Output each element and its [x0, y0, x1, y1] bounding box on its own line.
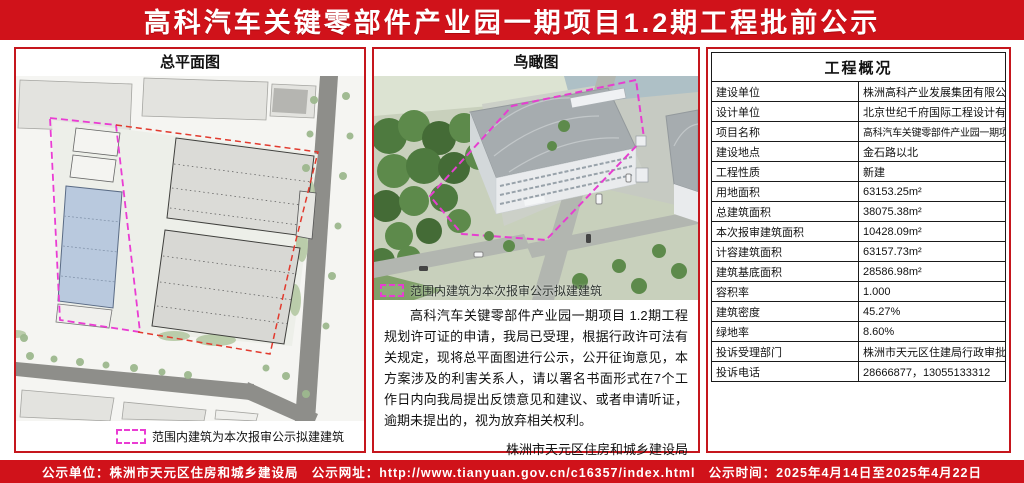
- footer-time-value: 2025年4月14日至2025年4月22日: [776, 466, 982, 480]
- magenta-dashed-box-icon: [380, 284, 404, 297]
- site-plan-legend: 范围内建筑为本次报审公示拟建建筑: [16, 428, 364, 445]
- row-label: 建筑基底面积: [712, 262, 859, 282]
- magenta-dashed-box-icon: [116, 429, 146, 444]
- footer-unit: 公示单位：株洲市天元区住房和城乡建设局: [42, 462, 299, 481]
- row-value: 45.27%: [859, 302, 1006, 322]
- aerial-title: 鸟瞰图: [374, 49, 698, 76]
- row-value: 38075.38m²: [859, 202, 1006, 222]
- site-plan-svg: [16, 76, 364, 421]
- issuer-signature: 株洲市天元区住房和城乡建设局: [374, 439, 698, 458]
- row-label: 本次报审建筑面积: [712, 222, 859, 242]
- header-banner: 高科汽车关键零部件产业园一期项目1.2期工程批前公示: [0, 0, 1024, 40]
- row-value: 株洲市天元区住建局行政审批股: [859, 342, 1006, 362]
- table-row: 容积率1.000: [712, 282, 1006, 302]
- site-plan-drawing: [16, 76, 364, 421]
- table-row: 计容建筑面积63157.73m²: [712, 242, 1006, 262]
- table-row: 建设单位株洲高科产业发展集团有限公司: [712, 82, 1006, 102]
- table-row: 投诉电话28666877，13055133312: [712, 362, 1006, 382]
- table-row: 本次报审建筑面积10428.09m²: [712, 222, 1006, 242]
- main-title: 高科汽车关键零部件产业园一期项目1.2期工程批前公示: [144, 1, 881, 40]
- site-plan-title: 总平面图: [16, 49, 364, 76]
- row-label: 计容建筑面积: [712, 242, 859, 262]
- row-label: 总建筑面积: [712, 202, 859, 222]
- overview-table: 工程概况 建设单位株洲高科产业发展集团有限公司 设计单位北京世纪千府国际工程设计…: [711, 52, 1006, 382]
- aerial-view-svg: [374, 76, 698, 300]
- row-label: 用地面积: [712, 182, 859, 202]
- table-row: 工程性质新建: [712, 162, 1006, 182]
- table-title: 工程概况: [712, 53, 1006, 82]
- row-value: 高科汽车关键零部件产业园一期项目1.2期工程: [859, 122, 1006, 142]
- footer-url-value: http://www.tianyuan.gov.cn/c16357/index.…: [379, 466, 695, 480]
- row-label: 建设地点: [712, 142, 859, 162]
- footer-banner: 公示单位：株洲市天元区住房和城乡建设局 公示网址：http://www.tian…: [0, 460, 1024, 483]
- table-row: 投诉受理部门株洲市天元区住建局行政审批股: [712, 342, 1006, 362]
- row-value: 28666877，13055133312: [859, 362, 1006, 382]
- row-value: 金石路以北: [859, 142, 1006, 162]
- footer-unit-label: 公示单位：: [42, 466, 110, 480]
- overview-panel: 工程概况 建设单位株洲高科产业发展集团有限公司 设计单位北京世纪千府国际工程设计…: [706, 47, 1011, 453]
- row-value: 10428.09m²: [859, 222, 1006, 242]
- footer-unit-value: 株洲市天元区住房和城乡建设局: [110, 466, 299, 480]
- aerial-legend-text: 范围内建筑为本次报审公示拟建建筑: [410, 282, 602, 299]
- aerial-legend: 范围内建筑为本次报审公示拟建建筑: [380, 282, 602, 299]
- row-value: 1.000: [859, 282, 1006, 302]
- table-row: 建筑基底面积28586.98m²: [712, 262, 1006, 282]
- row-label: 投诉受理部门: [712, 342, 859, 362]
- aerial-panel: 鸟瞰图: [372, 47, 700, 453]
- table-row: 用地面积63153.25m²: [712, 182, 1006, 202]
- row-label: 设计单位: [712, 102, 859, 122]
- row-value: 63153.25m²: [859, 182, 1006, 202]
- table-row: 总建筑面积38075.38m²: [712, 202, 1006, 222]
- row-value: 新建: [859, 162, 1006, 182]
- footer-url-label: 公示网址：: [312, 466, 380, 480]
- public-notice-poster: 高科汽车关键零部件产业园一期项目1.2期工程批前公示 总平面图: [0, 0, 1024, 483]
- notice-paragraph: 高科汽车关键零部件产业园一期项目 1.2期工程规划许可证的申请，我局已受理，根据…: [374, 300, 698, 431]
- footer-time-label: 公示时间：: [709, 466, 777, 480]
- row-label: 工程性质: [712, 162, 859, 182]
- row-label: 绿地率: [712, 322, 859, 342]
- site-plan-panel: 总平面图: [14, 47, 366, 453]
- table-row: 建设地点金石路以北: [712, 142, 1006, 162]
- aerial-view-rendering: 范围内建筑为本次报审公示拟建建筑: [374, 76, 698, 300]
- row-value: 63157.73m²: [859, 242, 1006, 262]
- row-label: 建设单位: [712, 82, 859, 102]
- row-label: 容积率: [712, 282, 859, 302]
- row-label: 投诉电话: [712, 362, 859, 382]
- row-value: 28586.98m²: [859, 262, 1006, 282]
- table-row: 绿地率8.60%: [712, 322, 1006, 342]
- table-row: 建筑密度45.27%: [712, 302, 1006, 322]
- table-row: 项目名称高科汽车关键零部件产业园一期项目1.2期工程: [712, 122, 1006, 142]
- row-value: 8.60%: [859, 322, 1006, 342]
- row-value: 株洲高科产业发展集团有限公司: [859, 82, 1006, 102]
- row-label: 建筑密度: [712, 302, 859, 322]
- site-plan-legend-text: 范围内建筑为本次报审公示拟建建筑: [152, 428, 344, 445]
- table-row: 设计单位北京世纪千府国际工程设计有限公司: [712, 102, 1006, 122]
- row-label: 项目名称: [712, 122, 859, 142]
- footer-url: 公示网址：http://www.tianyuan.gov.cn/c16357/i…: [312, 462, 696, 481]
- table-header-row: 工程概况: [712, 53, 1006, 82]
- row-value: 北京世纪千府国际工程设计有限公司: [859, 102, 1006, 122]
- footer-time: 公示时间：2025年4月14日至2025年4月22日: [709, 462, 982, 481]
